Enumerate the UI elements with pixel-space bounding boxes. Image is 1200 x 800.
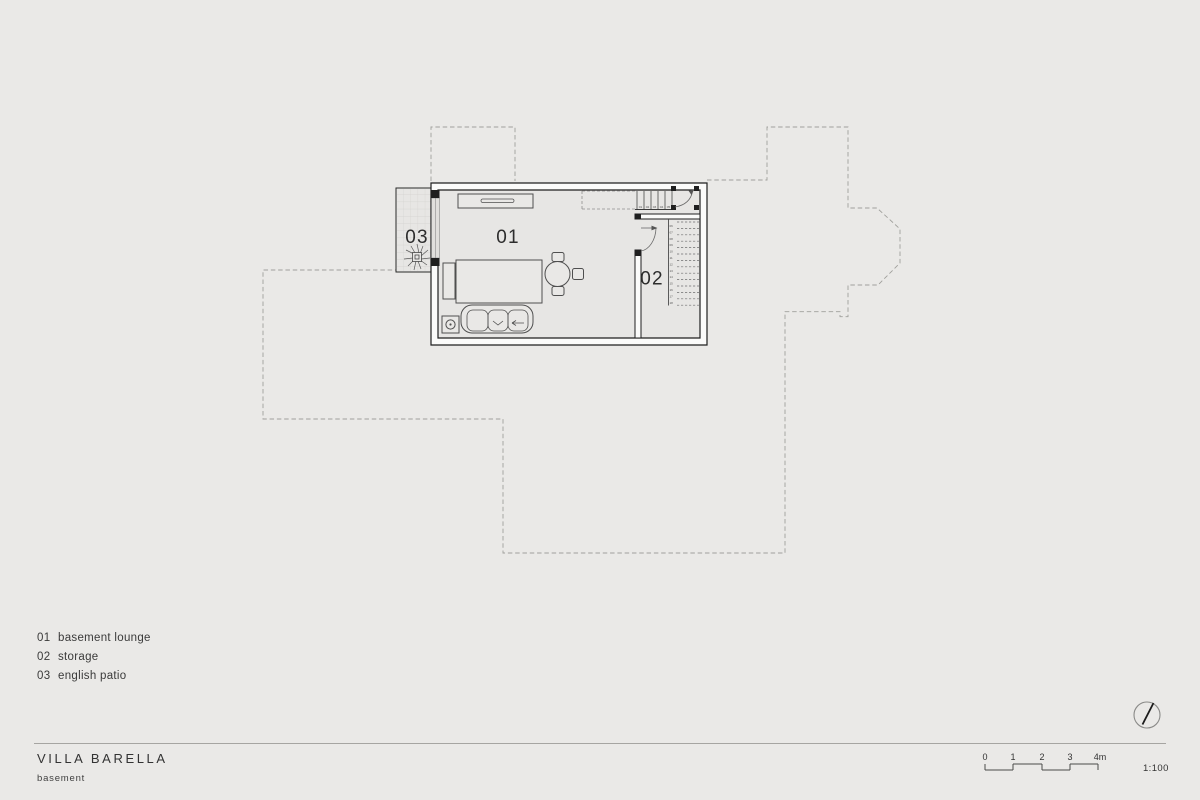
billiard-table: [456, 260, 542, 303]
legend-room-number: 02: [37, 651, 58, 663]
project-title: VILLA BARELLA: [37, 751, 168, 766]
window-jamb: [431, 190, 440, 198]
scale-tick: 1: [1010, 752, 1015, 762]
wall-cap: [635, 250, 641, 256]
stair-step-number: 17: [670, 294, 674, 298]
stair-step-number: 03: [653, 205, 657, 209]
door-jamb: [694, 186, 699, 191]
stair-step-number: 11: [670, 256, 673, 260]
compass-needle-icon: [1143, 703, 1154, 725]
scale-bar-ticks: 0 1 2 3 4m: [982, 752, 1106, 762]
sheet-name: basement: [37, 773, 168, 784]
title-block: VILLA BARELLA basement: [37, 751, 168, 784]
scale-tick: 0: [982, 752, 987, 762]
legend-row: 03 english patio: [37, 670, 151, 689]
door-jamb: [694, 205, 699, 210]
patio-window: [431, 190, 440, 266]
stair-step-number: 13: [670, 269, 674, 273]
stair-step-number: 08: [670, 237, 674, 241]
legend-room-number: 03: [37, 670, 58, 682]
north-indicator: [1134, 702, 1160, 728]
legend-room-name: basement lounge: [58, 632, 151, 644]
drawing-sheet: 0102030405 06070809101112131415161718: [0, 0, 1200, 800]
sideboard: [458, 194, 533, 208]
stair-step-number: 02: [646, 205, 650, 209]
stool: [573, 269, 584, 280]
room-label-lounge: 01: [496, 227, 520, 248]
legend-room-number: 01: [37, 632, 58, 644]
room-legend: 01 basement lounge 02 storage 03 english…: [37, 632, 151, 689]
stair-step-number: 16: [670, 288, 674, 292]
sofa-outline: [461, 305, 533, 333]
legend-room-name: storage: [58, 651, 98, 663]
scale-tick: 3: [1067, 752, 1072, 762]
scale-bar-rule: [985, 764, 1098, 770]
storage-top-wall: [635, 214, 700, 219]
floor-plan-drawing: 0102030405 06070809101112131415161718: [0, 0, 1200, 800]
door-jamb: [671, 205, 676, 210]
round-table: [545, 262, 570, 287]
stair-step-number: 01: [639, 205, 643, 209]
scale-tick: 4m: [1094, 752, 1107, 762]
scale-tick: 2: [1039, 752, 1044, 762]
stair-step-number: 18: [670, 301, 674, 305]
legend-row: 01 basement lounge: [37, 632, 151, 651]
sofa: [461, 305, 533, 333]
chair: [552, 287, 564, 296]
room-label-storage: 02: [640, 269, 664, 290]
drain-dot: [449, 323, 451, 325]
storage-partition-wall: [635, 250, 641, 338]
stair-step-number: 07: [670, 230, 674, 234]
stair-step-number: 09: [670, 243, 674, 247]
side-shelf: [443, 263, 455, 299]
window-jamb: [431, 258, 440, 266]
stair-step-number: 10: [670, 250, 674, 254]
stair-step-number: 14: [670, 275, 674, 279]
footer-divider: [34, 743, 1166, 744]
floor-drain: [442, 316, 459, 333]
scale-bar: 0 1 2 3 4m 1:100: [982, 752, 1168, 774]
stair-step-number: 05: [667, 205, 671, 209]
chair: [552, 253, 564, 262]
legend-room-name: english patio: [58, 670, 126, 682]
door-jamb: [671, 186, 676, 191]
scale-ratio: 1:100: [1143, 763, 1169, 774]
wall-cap: [635, 214, 641, 219]
stair-step-number: 15: [670, 282, 674, 286]
stair-step-number: 04: [660, 205, 664, 209]
legend-row: 02 storage: [37, 651, 151, 670]
stair-step-number: 06: [670, 224, 674, 228]
stair-step-number: 12: [670, 262, 674, 266]
room-label-patio: 03: [405, 227, 429, 248]
